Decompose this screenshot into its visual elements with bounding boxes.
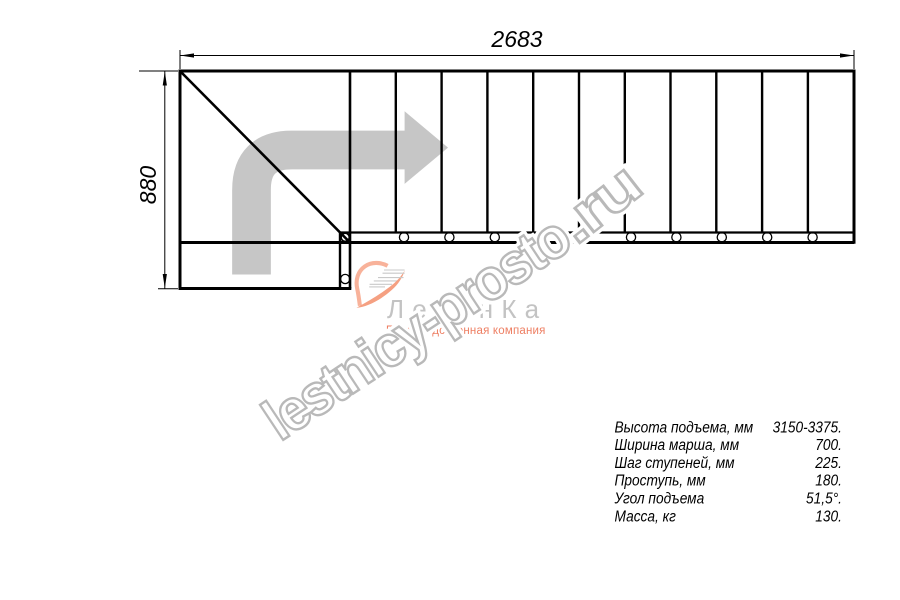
svg-text:Проступь, мм: Проступь, мм (615, 473, 707, 490)
svg-text:700.: 700. (815, 437, 842, 454)
svg-text:880: 880 (135, 166, 161, 205)
svg-text:Угол подъема: Угол подъема (614, 491, 705, 508)
svg-text:3150-3375.: 3150-3375. (773, 419, 842, 436)
svg-text:Ширина марша, мм: Ширина марша, мм (615, 437, 740, 454)
svg-text:130.: 130. (815, 508, 842, 525)
svg-text:225.: 225. (814, 455, 842, 472)
svg-text:51,5°.: 51,5°. (806, 491, 842, 508)
svg-text:Высота подъема, мм: Высота подъема, мм (615, 419, 754, 436)
svg-text:Масса, кг: Масса, кг (615, 508, 677, 525)
svg-text:Шаг ступеней, мм: Шаг ступеней, мм (615, 455, 735, 472)
svg-text:180.: 180. (815, 473, 842, 490)
svg-text:2683: 2683 (490, 26, 542, 52)
